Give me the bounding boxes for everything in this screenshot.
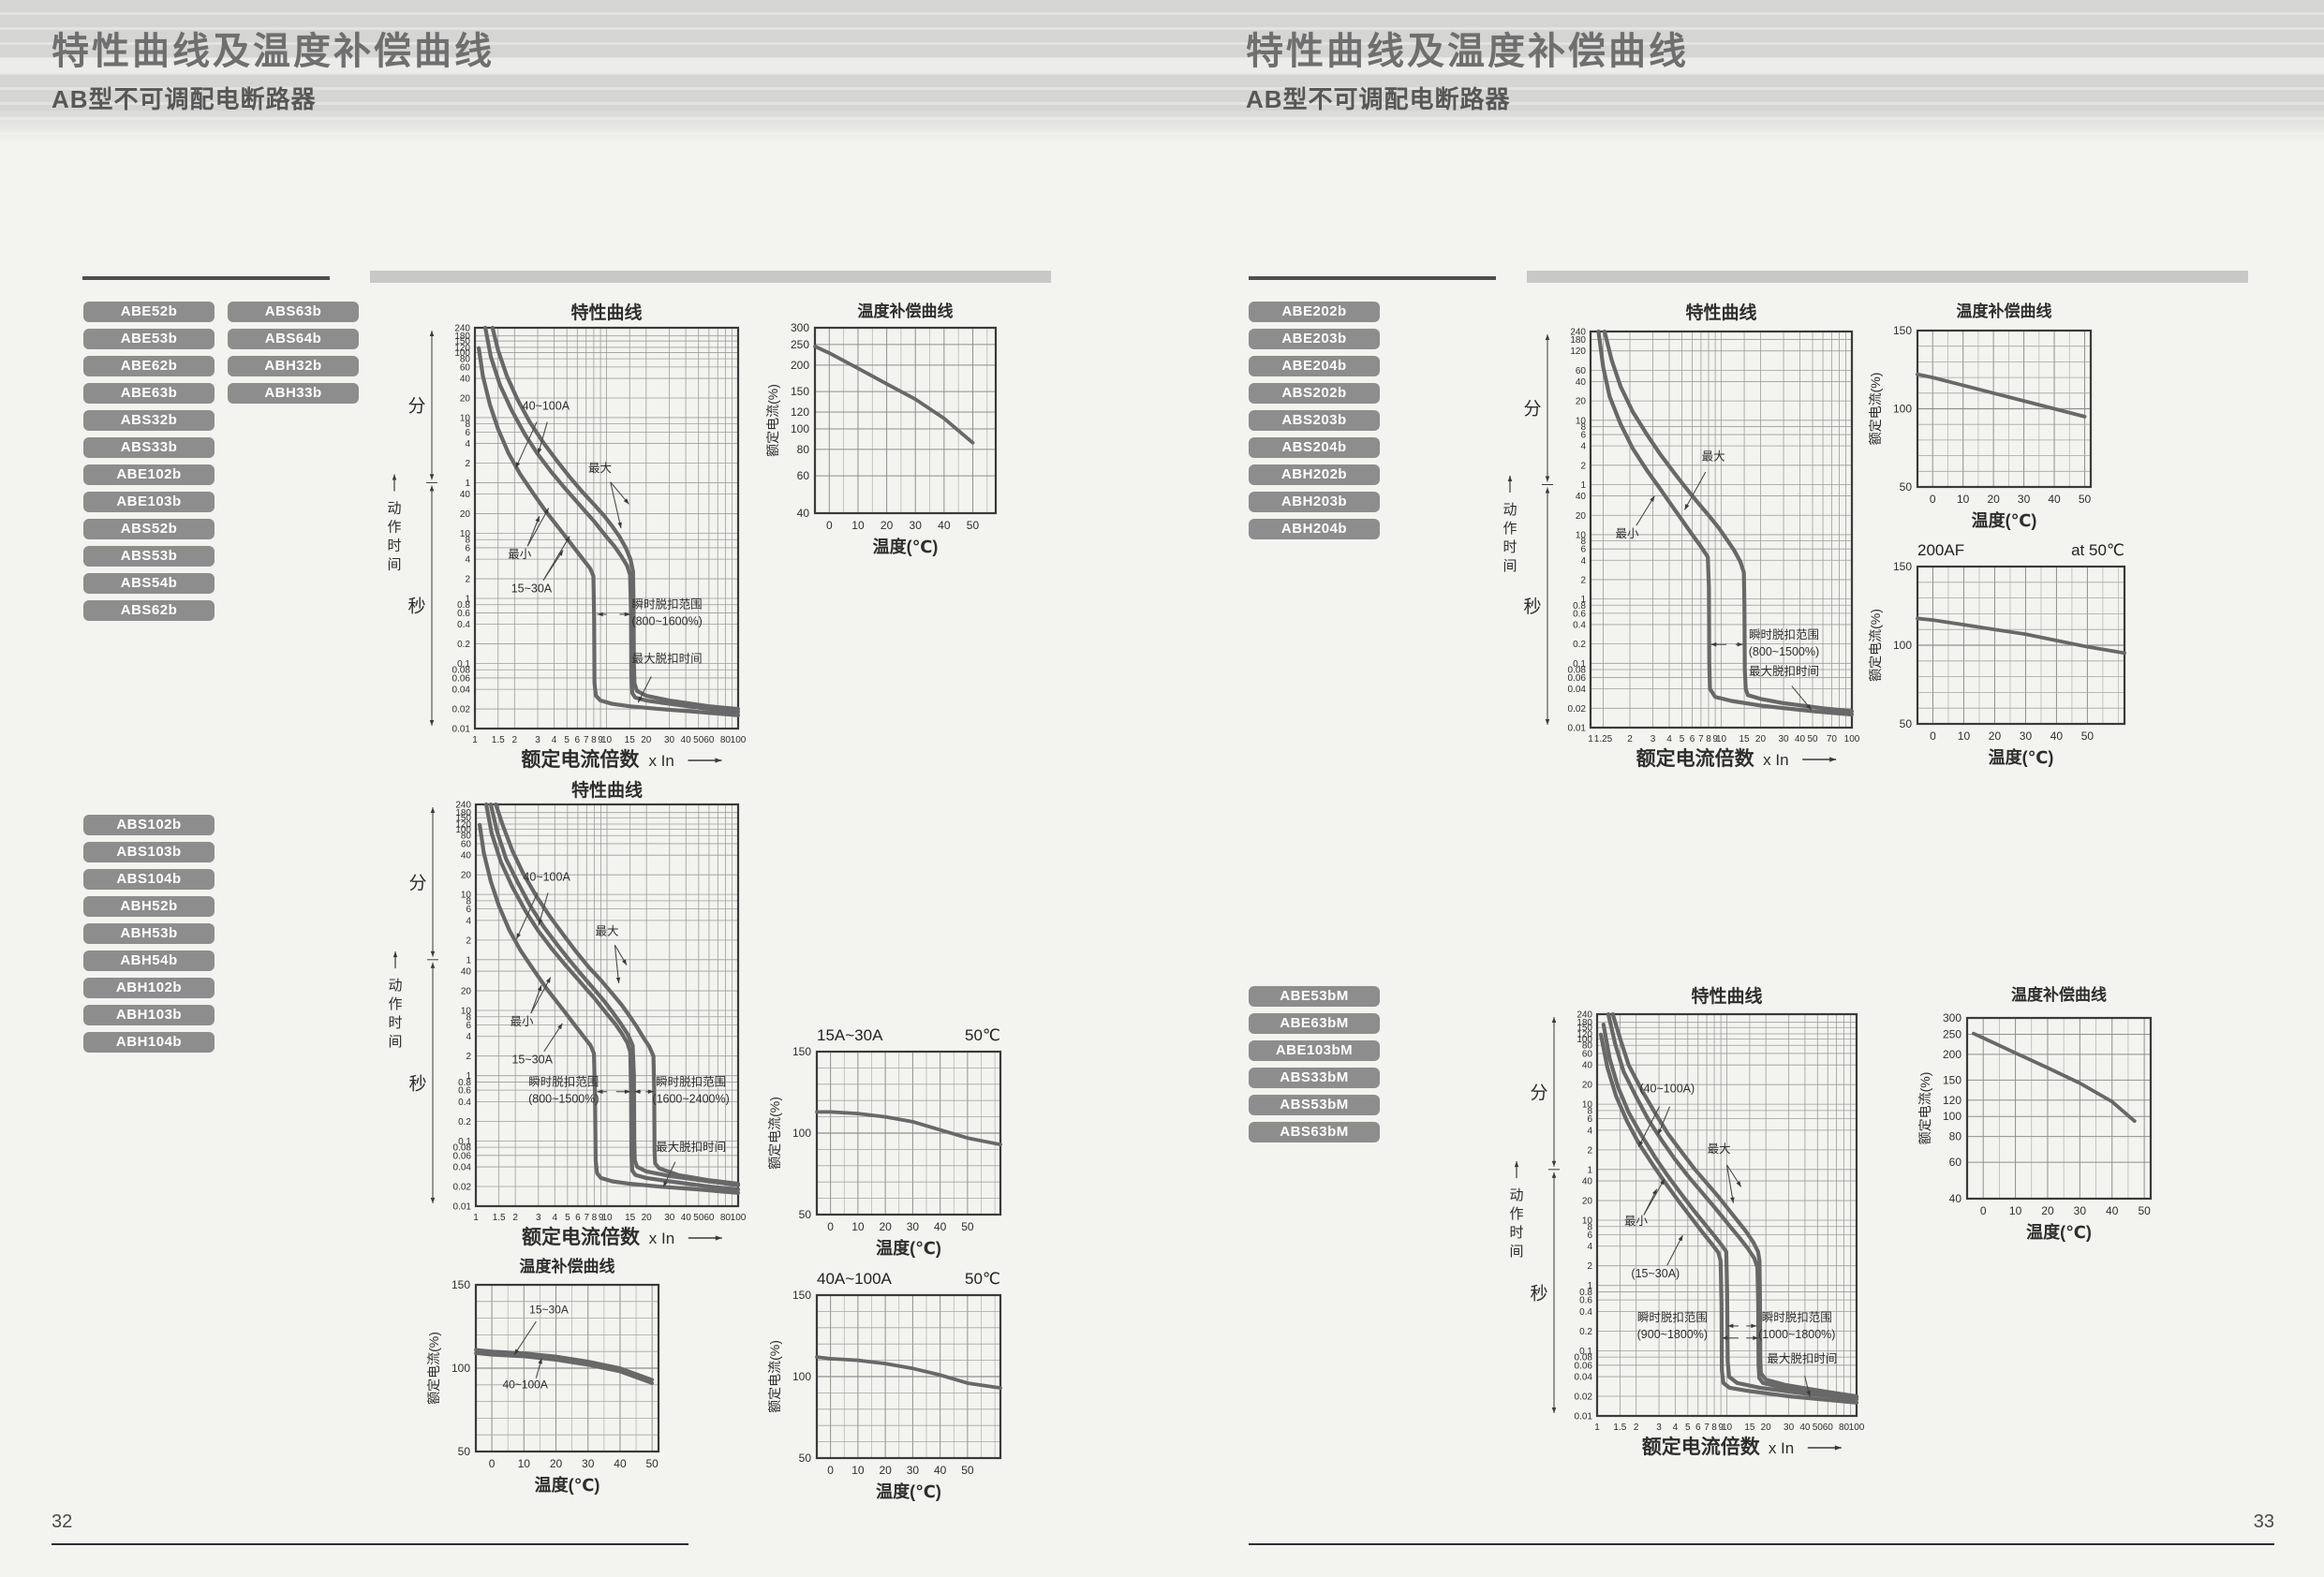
svg-text:40~100A: 40~100A: [523, 871, 570, 884]
svg-text:1: 1: [1594, 1422, 1600, 1433]
trip-curve-chart-R1: 特性曲线2401801206040201086421402010864210.8…: [1485, 298, 1887, 780]
temp-compensation-chart-L2: 温度补偿曲线3002502001501201008060400102030405…: [745, 298, 1026, 583]
svg-text:30: 30: [1784, 1422, 1795, 1433]
svg-text:10: 10: [851, 1220, 865, 1233]
svg-text:最大: 最大: [588, 462, 612, 475]
svg-text:1: 1: [1588, 734, 1593, 744]
svg-text:20: 20: [881, 519, 894, 532]
svg-text:50: 50: [1900, 717, 1913, 730]
model-badge: ABH53b: [83, 923, 215, 944]
svg-text:0.01: 0.01: [453, 1202, 472, 1213]
svg-text:间: 间: [1509, 1244, 1523, 1260]
chart-svg-L3: 特性曲线240180150120100806040201086421402010…: [370, 775, 773, 1258]
svg-text:0.4: 0.4: [458, 1098, 471, 1108]
svg-text:0.02: 0.02: [1568, 704, 1587, 715]
svg-text:温度(℃): 温度(℃): [1989, 747, 2054, 767]
svg-text:0.04: 0.04: [1568, 685, 1587, 695]
svg-text:50: 50: [2079, 493, 2092, 506]
svg-text:40: 40: [460, 375, 471, 385]
svg-text:1: 1: [1587, 1165, 1592, 1175]
model-badge: ABS202b: [1249, 383, 1380, 404]
svg-text:秒: 秒: [1523, 597, 1541, 617]
svg-text:40: 40: [1582, 1061, 1593, 1071]
svg-text:80: 80: [797, 443, 810, 456]
svg-text:15A~30A: 15A~30A: [817, 1026, 883, 1044]
svg-text:8: 8: [1706, 734, 1711, 744]
svg-text:温度(℃): 温度(℃): [2026, 1222, 2092, 1242]
svg-text:6: 6: [1587, 1114, 1592, 1125]
svg-text:特性曲线: 特性曲线: [1685, 302, 1756, 323]
svg-text:0.4: 0.4: [457, 620, 470, 630]
svg-text:15: 15: [625, 735, 636, 745]
chart-svg-R3: 200AFat 50℃1501005001020304050温度(℃)额定电流(…: [1850, 536, 2140, 770]
svg-text:0: 0: [827, 1464, 834, 1477]
catalog-spread: 特性曲线及温度补偿曲线 特性曲线及温度补偿曲线 AB型不可调配电断路器 AB型不…: [0, 0, 2324, 1577]
model-badge: ABS63b: [228, 302, 359, 322]
svg-text:10: 10: [2009, 1204, 2022, 1217]
svg-text:20: 20: [461, 987, 472, 997]
svg-text:30: 30: [1778, 734, 1789, 744]
svg-text:60: 60: [1576, 366, 1587, 376]
svg-text:6: 6: [575, 735, 581, 745]
chart-svg-L5: 40A~100A50℃1501005001020304050温度(℃)额定电流(…: [745, 1266, 1026, 1510]
svg-text:温度(℃): 温度(℃): [535, 1475, 600, 1495]
svg-text:(40~100A): (40~100A): [1639, 1083, 1695, 1096]
svg-text:40: 40: [934, 1464, 947, 1477]
svg-text:6: 6: [466, 905, 471, 915]
temp-compensation-chart-L5: 40A~100A50℃1501005001020304050温度(℃)额定电流(…: [745, 1266, 1026, 1514]
svg-text:6: 6: [1580, 545, 1586, 555]
svg-text:40: 40: [681, 1213, 692, 1223]
svg-text:最大脱扣时间: 最大脱扣时间: [656, 1140, 726, 1154]
svg-text:60: 60: [703, 1213, 715, 1223]
svg-text:15~30A: 15~30A: [511, 582, 553, 595]
model-badge: ABE62b: [83, 356, 215, 376]
svg-text:300: 300: [1943, 1011, 1961, 1024]
svg-text:作: 作: [387, 520, 401, 536]
svg-text:1: 1: [465, 479, 470, 489]
svg-text:0.02: 0.02: [1575, 1393, 1593, 1403]
svg-text:5: 5: [1685, 1422, 1691, 1433]
svg-text:最大脱扣时间: 最大脱扣时间: [632, 651, 703, 665]
svg-text:0.2: 0.2: [458, 1117, 471, 1127]
svg-text:50: 50: [1813, 1422, 1824, 1433]
svg-text:40: 40: [2106, 1204, 2119, 1217]
svg-text:间: 间: [388, 1034, 402, 1050]
svg-text:4: 4: [1587, 1126, 1592, 1136]
svg-text:40: 40: [1576, 377, 1587, 388]
svg-text:温度(℃): 温度(℃): [876, 1238, 941, 1258]
svg-text:温度补偿曲线: 温度补偿曲线: [2011, 985, 2107, 1004]
svg-text:10: 10: [601, 1213, 613, 1223]
svg-text:40~100A: 40~100A: [523, 400, 570, 413]
svg-text:6: 6: [575, 1213, 581, 1223]
svg-text:0.04: 0.04: [1575, 1373, 1593, 1383]
svg-text:动: 动: [387, 501, 401, 517]
svg-text:秒: 秒: [1530, 1283, 1547, 1304]
svg-text:20: 20: [1989, 730, 2002, 743]
temp-compensation-chart-L6: 温度补偿曲线1501005001020304050温度(℃)额定电流(%)15~…: [403, 1253, 684, 1520]
svg-text:300: 300: [791, 321, 809, 334]
chart-svg-L1: 特性曲线240180150120100806040201086421402010…: [370, 298, 773, 780]
svg-text:60: 60: [1582, 1049, 1593, 1059]
svg-text:特性曲线: 特性曲线: [1691, 985, 1762, 1007]
svg-text:2: 2: [466, 936, 471, 946]
model-badge: ABE204b: [1249, 356, 1380, 376]
svg-text:6: 6: [1587, 1231, 1592, 1241]
svg-text:2: 2: [512, 1213, 518, 1223]
svg-text:200AF: 200AF: [1917, 541, 1964, 559]
svg-text:0.06: 0.06: [452, 673, 471, 684]
svg-text:10: 10: [851, 1464, 865, 1477]
svg-text:2: 2: [1587, 1261, 1592, 1272]
svg-text:4: 4: [1580, 556, 1586, 567]
svg-text:20: 20: [641, 735, 652, 745]
svg-text:额定电流(%): 额定电流(%): [1917, 1072, 1932, 1145]
svg-text:10: 10: [518, 1457, 531, 1470]
svg-text:40: 40: [797, 507, 810, 520]
svg-text:秒: 秒: [408, 1073, 426, 1094]
svg-text:250: 250: [791, 338, 809, 351]
trip-curve-chart-L1: 特性曲线240180150120100806040201086421402010…: [370, 298, 773, 785]
svg-text:0.6: 0.6: [1573, 609, 1586, 619]
svg-text:额定电流(%): 额定电流(%): [767, 1340, 782, 1413]
svg-text:3: 3: [536, 1213, 541, 1223]
svg-text:额定电流倍数: 额定电流倍数: [1636, 747, 1755, 770]
svg-text:0: 0: [1980, 1204, 1987, 1217]
svg-text:(900~1800%): (900~1800%): [1637, 1328, 1708, 1341]
svg-text:150: 150: [792, 1289, 811, 1302]
model-badge: ABH202b: [1249, 464, 1380, 485]
model-badge: ABS203b: [1249, 410, 1380, 431]
trip-curve-chart-L3: 特性曲线240180150120100806040201086421402010…: [370, 775, 773, 1262]
svg-text:x In: x In: [649, 1230, 674, 1247]
svg-text:0.06: 0.06: [1568, 673, 1587, 684]
svg-text:1.5: 1.5: [1613, 1422, 1626, 1433]
svg-text:40: 40: [614, 1457, 627, 1470]
chart-svg-L2: 温度补偿曲线3002502001501201008060400102030405…: [745, 298, 1026, 579]
svg-text:0.04: 0.04: [453, 1163, 472, 1173]
svg-text:x In: x In: [1769, 1439, 1794, 1457]
svg-text:1: 1: [466, 955, 471, 965]
svg-text:20: 20: [550, 1457, 563, 1470]
svg-text:6: 6: [1695, 1422, 1701, 1433]
svg-text:0: 0: [1930, 493, 1936, 506]
svg-text:额定电流倍数: 额定电流倍数: [522, 1226, 641, 1248]
section-band-right: [1527, 271, 2248, 283]
model-badge: ABH54b: [83, 951, 215, 971]
svg-text:(800~1500%): (800~1500%): [1749, 645, 1819, 658]
svg-text:40: 40: [460, 490, 471, 500]
svg-text:60: 60: [460, 362, 471, 373]
svg-text:3: 3: [1650, 734, 1656, 744]
svg-text:2: 2: [1627, 734, 1633, 744]
page-subtitle-right: AB型不可调配电断路器: [1246, 81, 1511, 115]
temp-compensation-chart-L4: 15A~30A50℃1501005001020304050温度(℃)额定电流(%…: [745, 1023, 1026, 1271]
svg-text:4: 4: [1580, 442, 1586, 452]
svg-text:最大: 最大: [595, 924, 618, 937]
model-badge: ABE52b: [83, 302, 215, 322]
svg-text:最小: 最小: [508, 548, 532, 561]
svg-text:2: 2: [465, 459, 470, 469]
svg-text:15: 15: [625, 1213, 636, 1223]
svg-text:60: 60: [1823, 1422, 1834, 1433]
svg-text:20: 20: [460, 509, 471, 520]
svg-text:20: 20: [461, 871, 472, 881]
svg-text:0.2: 0.2: [457, 640, 470, 650]
svg-text:6: 6: [1580, 431, 1586, 441]
model-badge: ABE203b: [1249, 329, 1380, 349]
svg-text:4: 4: [466, 916, 471, 926]
model-badge: ABS54b: [83, 573, 215, 594]
svg-text:瞬时脱扣范围: 瞬时脱扣范围: [1637, 1310, 1708, 1324]
svg-text:at 50℃: at 50℃: [2071, 541, 2124, 559]
svg-text:额定电流倍数: 额定电流倍数: [521, 748, 640, 771]
svg-text:0: 0: [489, 1457, 496, 1470]
svg-text:40: 40: [934, 1220, 947, 1233]
svg-text:额定电流(%): 额定电流(%): [426, 1332, 441, 1405]
model-badge: ABS64b: [228, 329, 359, 349]
model-badge: ABH32b: [228, 356, 359, 376]
svg-text:特性曲线: 特性曲线: [571, 779, 643, 801]
svg-text:100: 100: [792, 1127, 811, 1140]
section-rule-right: [1249, 276, 1496, 280]
svg-text:20: 20: [2041, 1204, 2054, 1217]
svg-text:动: 动: [1509, 1187, 1523, 1203]
page-title-right: 特性曲线及温度补偿曲线: [1246, 21, 1689, 75]
model-badge: ABE102b: [83, 464, 215, 485]
svg-text:100: 100: [792, 1370, 811, 1383]
svg-text:30: 30: [907, 1464, 920, 1477]
svg-text:20: 20: [642, 1213, 653, 1223]
svg-text:0.02: 0.02: [453, 1183, 472, 1193]
svg-text:150: 150: [1943, 1073, 1961, 1086]
svg-text:40A~100A: 40A~100A: [817, 1270, 893, 1288]
svg-text:100: 100: [731, 735, 747, 745]
section-rule-left: [82, 276, 330, 280]
svg-text:温度(℃): 温度(℃): [873, 537, 939, 556]
svg-text:4: 4: [552, 735, 557, 745]
svg-text:作: 作: [1509, 1206, 1523, 1222]
svg-text:40: 40: [1576, 492, 1587, 502]
model-badge: ABH104b: [83, 1032, 215, 1053]
svg-text:5: 5: [565, 1213, 570, 1223]
chart-svg-L6: 温度补偿曲线1501005001020304050温度(℃)额定电流(%)15~…: [403, 1253, 684, 1515]
chart-svg-R5: 温度补偿曲线3002502001501201008060400102030405…: [1883, 981, 2164, 1248]
model-badge: ABS62b: [83, 600, 215, 621]
svg-text:20: 20: [1755, 734, 1767, 744]
model-badge: ABS102b: [83, 815, 215, 835]
svg-text:间: 间: [387, 557, 401, 573]
svg-text:50: 50: [458, 1445, 471, 1458]
svg-text:60: 60: [461, 839, 472, 849]
svg-text:8: 8: [591, 735, 597, 745]
model-badge: ABH204b: [1249, 519, 1380, 539]
svg-text:瞬时脱扣范围: 瞬时脱扣范围: [1762, 1310, 1832, 1324]
chart-svg-R1: 特性曲线2401801206040201086421402010864210.8…: [1485, 298, 1887, 775]
svg-text:额定电流倍数: 额定电流倍数: [1642, 1436, 1761, 1458]
svg-text:特性曲线: 特性曲线: [570, 302, 642, 323]
svg-text:150: 150: [451, 1278, 470, 1291]
svg-text:最大脱扣时间: 最大脱扣时间: [1749, 664, 1819, 678]
svg-text:3: 3: [1656, 1422, 1662, 1433]
svg-text:120: 120: [1570, 346, 1586, 357]
svg-text:50: 50: [961, 1220, 974, 1233]
svg-text:50: 50: [799, 1208, 812, 1221]
svg-text:8: 8: [592, 1213, 598, 1223]
svg-text:1.5: 1.5: [492, 735, 505, 745]
svg-text:最小: 最小: [1616, 527, 1640, 540]
svg-text:2: 2: [512, 735, 518, 745]
model-badge: ABS103b: [83, 842, 215, 862]
svg-text:动: 动: [388, 978, 402, 994]
svg-text:80: 80: [1949, 1130, 1962, 1143]
svg-text:0.04: 0.04: [452, 685, 471, 696]
svg-text:2: 2: [465, 575, 470, 585]
svg-text:80: 80: [720, 735, 732, 745]
svg-text:温度补偿曲线: 温度补偿曲线: [858, 302, 954, 320]
svg-text:作: 作: [388, 996, 402, 1012]
svg-text:120: 120: [791, 405, 809, 419]
svg-text:最大: 最大: [1708, 1142, 1731, 1156]
svg-text:6: 6: [1690, 734, 1695, 744]
svg-text:20: 20: [1582, 1081, 1593, 1091]
temp-compensation-chart-R2: 温度补偿曲线1501005001020304050温度(℃)额定电流(%): [1850, 298, 2131, 541]
svg-text:0.2: 0.2: [1573, 640, 1586, 650]
model-badge: ABS52b: [83, 519, 215, 539]
svg-text:150: 150: [1893, 560, 1912, 573]
svg-text:30: 30: [664, 1213, 675, 1223]
model-badge: ABE63b: [83, 383, 215, 404]
svg-text:0.01: 0.01: [1568, 724, 1587, 734]
svg-text:20: 20: [1576, 397, 1587, 407]
svg-text:0.2: 0.2: [1579, 1327, 1592, 1337]
model-badge: ABS33bM: [1249, 1068, 1380, 1088]
svg-text:40: 40: [2050, 730, 2064, 743]
svg-text:250: 250: [1943, 1027, 1961, 1040]
svg-text:4: 4: [1673, 1422, 1679, 1433]
svg-text:(15~30A): (15~30A): [1631, 1267, 1680, 1280]
model-badge: ABH203b: [1249, 492, 1380, 512]
svg-text:(800~1600%): (800~1600%): [631, 615, 702, 628]
svg-text:额定电流(%): 额定电流(%): [1868, 609, 1883, 682]
svg-text:30: 30: [910, 519, 923, 532]
page-number-right: 33: [2239, 1511, 2274, 1533]
svg-text:30: 30: [582, 1457, 595, 1470]
svg-text:温度补偿曲线: 温度补偿曲线: [1957, 302, 2052, 320]
svg-text:50: 50: [1900, 480, 1913, 494]
svg-text:间: 间: [1502, 558, 1517, 574]
svg-text:10: 10: [1958, 730, 1971, 743]
svg-text:50: 50: [967, 519, 980, 532]
svg-text:最小: 最小: [510, 1015, 534, 1028]
svg-text:4: 4: [1587, 1242, 1592, 1252]
svg-text:50: 50: [645, 1457, 659, 1470]
svg-text:20: 20: [1576, 511, 1587, 522]
svg-text:作: 作: [1502, 521, 1517, 537]
svg-text:200: 200: [791, 359, 809, 372]
model-badge: ABS32b: [83, 410, 215, 431]
svg-text:20: 20: [1761, 1422, 1772, 1433]
svg-text:150: 150: [1893, 324, 1912, 337]
model-badge: ABE53bM: [1249, 986, 1380, 1007]
svg-text:50℃: 50℃: [965, 1270, 1000, 1288]
model-badge: ABS63bM: [1249, 1122, 1380, 1142]
svg-text:10: 10: [1957, 493, 1970, 506]
svg-text:4: 4: [465, 439, 470, 450]
svg-text:1: 1: [472, 735, 478, 745]
svg-text:5: 5: [1680, 734, 1685, 744]
svg-text:30: 30: [2074, 1204, 2087, 1217]
svg-text:50℃: 50℃: [965, 1026, 1000, 1044]
svg-text:100: 100: [451, 1362, 470, 1375]
temp-compensation-chart-R5: 温度补偿曲线3002502001501201008060400102030405…: [1883, 981, 2164, 1253]
svg-text:1: 1: [1580, 480, 1586, 491]
svg-text:2: 2: [1580, 575, 1586, 585]
page-number-left: 32: [52, 1511, 72, 1533]
footer-rule-right: [1249, 1543, 2274, 1545]
svg-text:40: 40: [2048, 493, 2061, 506]
svg-text:4: 4: [465, 555, 470, 566]
chart-svg-R2: 温度补偿曲线1501005001020304050温度(℃)额定电流(%): [1850, 298, 2131, 537]
svg-text:7: 7: [584, 735, 589, 745]
svg-text:30: 30: [664, 735, 675, 745]
svg-text:40: 40: [1795, 734, 1806, 744]
svg-text:40: 40: [461, 967, 472, 978]
svg-text:x In: x In: [1763, 751, 1788, 769]
svg-text:50: 50: [961, 1464, 974, 1477]
svg-text:2: 2: [1580, 461, 1586, 471]
svg-text:分: 分: [1523, 399, 1541, 420]
svg-text:x In: x In: [648, 752, 674, 770]
svg-text:40~100A: 40~100A: [502, 1378, 547, 1391]
chart-svg-L4: 15A~30A50℃1501005001020304050温度(℃)额定电流(%…: [745, 1023, 1026, 1266]
svg-text:分: 分: [408, 873, 426, 893]
svg-text:0.6: 0.6: [1579, 1296, 1592, 1306]
svg-text:15~30A: 15~30A: [511, 1054, 553, 1067]
svg-text:最小: 最小: [1624, 1215, 1649, 1228]
svg-text:4: 4: [553, 1213, 558, 1223]
svg-text:1.25: 1.25: [1594, 734, 1613, 744]
svg-text:0: 0: [827, 1220, 834, 1233]
svg-text:100: 100: [1849, 1422, 1865, 1433]
model-badge: ABH103b: [83, 1005, 215, 1025]
footer-rule-left: [52, 1543, 688, 1545]
svg-text:6: 6: [465, 428, 470, 438]
model-badge: ABH33b: [228, 383, 359, 404]
svg-text:温度补偿曲线: 温度补偿曲线: [520, 1257, 615, 1275]
svg-text:60: 60: [703, 735, 715, 745]
model-badge: ABS53bM: [1249, 1095, 1380, 1115]
svg-text:60: 60: [1949, 1156, 1962, 1169]
chart-svg-R4: 特性曲线240180150120100806040201086421402010…: [1485, 981, 1887, 1459]
svg-text:温度(℃): 温度(℃): [876, 1481, 941, 1501]
svg-text:0.6: 0.6: [457, 609, 470, 619]
svg-text:20: 20: [879, 1220, 892, 1233]
svg-text:20: 20: [879, 1464, 892, 1477]
svg-text:100: 100: [1893, 639, 1912, 652]
svg-text:0.6: 0.6: [458, 1086, 471, 1097]
svg-text:180: 180: [1570, 335, 1586, 346]
svg-text:2: 2: [466, 1052, 471, 1062]
svg-text:额定电流(%): 额定电流(%): [767, 1097, 782, 1170]
svg-text:50: 50: [2138, 1204, 2151, 1217]
svg-text:50: 50: [799, 1452, 812, 1465]
svg-text:20: 20: [1582, 1197, 1593, 1207]
header-fade: [0, 111, 2324, 146]
model-badge: ABS33b: [83, 437, 215, 458]
model-badge: ABS104b: [83, 869, 215, 890]
